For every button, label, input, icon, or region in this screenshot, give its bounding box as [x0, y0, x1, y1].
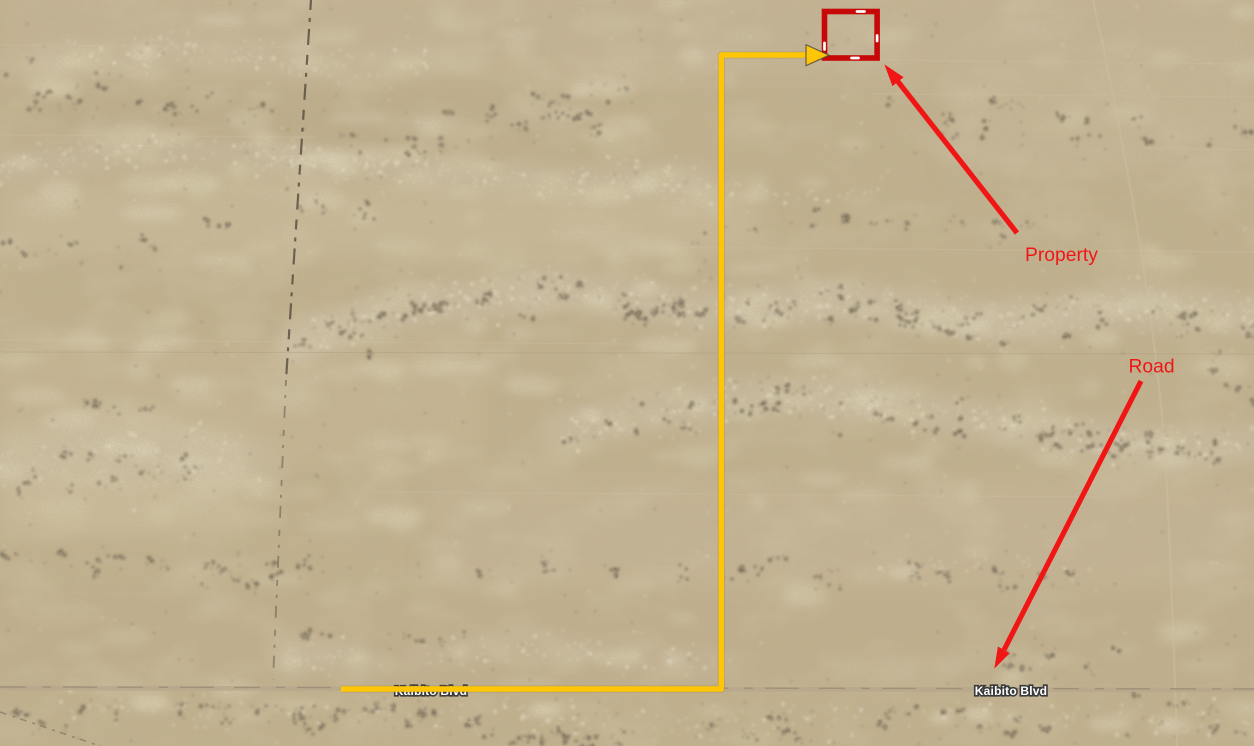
svg-text:Kaibito Blvd: Kaibito Blvd — [975, 684, 1047, 698]
svg-text:Road: Road — [1129, 357, 1175, 378]
svg-text:Property: Property — [1025, 245, 1098, 266]
